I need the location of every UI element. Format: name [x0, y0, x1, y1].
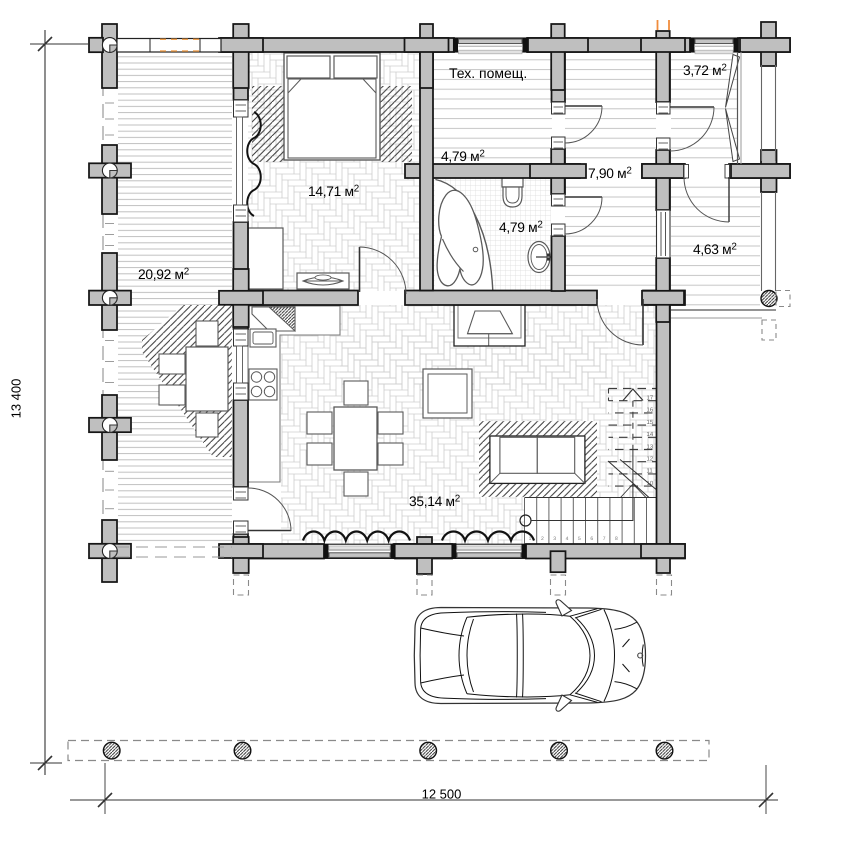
svg-text:3,72 м2: 3,72 м2 [683, 63, 727, 79]
svg-text:17: 17 [647, 395, 654, 402]
svg-text:2: 2 [541, 536, 544, 542]
svg-text:7,90 м2: 7,90 м2 [588, 166, 632, 182]
svg-text:16: 16 [647, 407, 654, 414]
svg-text:6: 6 [590, 536, 593, 542]
svg-text:14: 14 [647, 431, 654, 438]
svg-text:20,92 м2: 20,92 м2 [138, 267, 189, 283]
svg-text:14,71 м2: 14,71 м2 [308, 184, 359, 200]
svg-text:11: 11 [647, 468, 654, 475]
svg-text:13: 13 [647, 443, 654, 450]
svg-text:13 400: 13 400 [9, 379, 24, 419]
svg-text:Тех. помещ.: Тех. помещ. [449, 65, 527, 81]
svg-text:8: 8 [615, 536, 618, 542]
svg-text:35,14 м2: 35,14 м2 [409, 494, 460, 510]
svg-text:4,63 м2: 4,63 м2 [693, 242, 737, 258]
svg-text:12 500: 12 500 [422, 787, 462, 802]
svg-text:15: 15 [647, 419, 654, 426]
svg-text:4: 4 [566, 536, 569, 542]
svg-text:12: 12 [647, 456, 654, 463]
svg-text:7: 7 [603, 536, 606, 542]
svg-text:4,79 м2: 4,79 м2 [499, 220, 543, 236]
svg-text:5: 5 [578, 536, 581, 542]
svg-text:10: 10 [647, 480, 654, 487]
svg-text:3: 3 [553, 536, 556, 542]
svg-text:4,79 м2: 4,79 м2 [441, 149, 485, 165]
